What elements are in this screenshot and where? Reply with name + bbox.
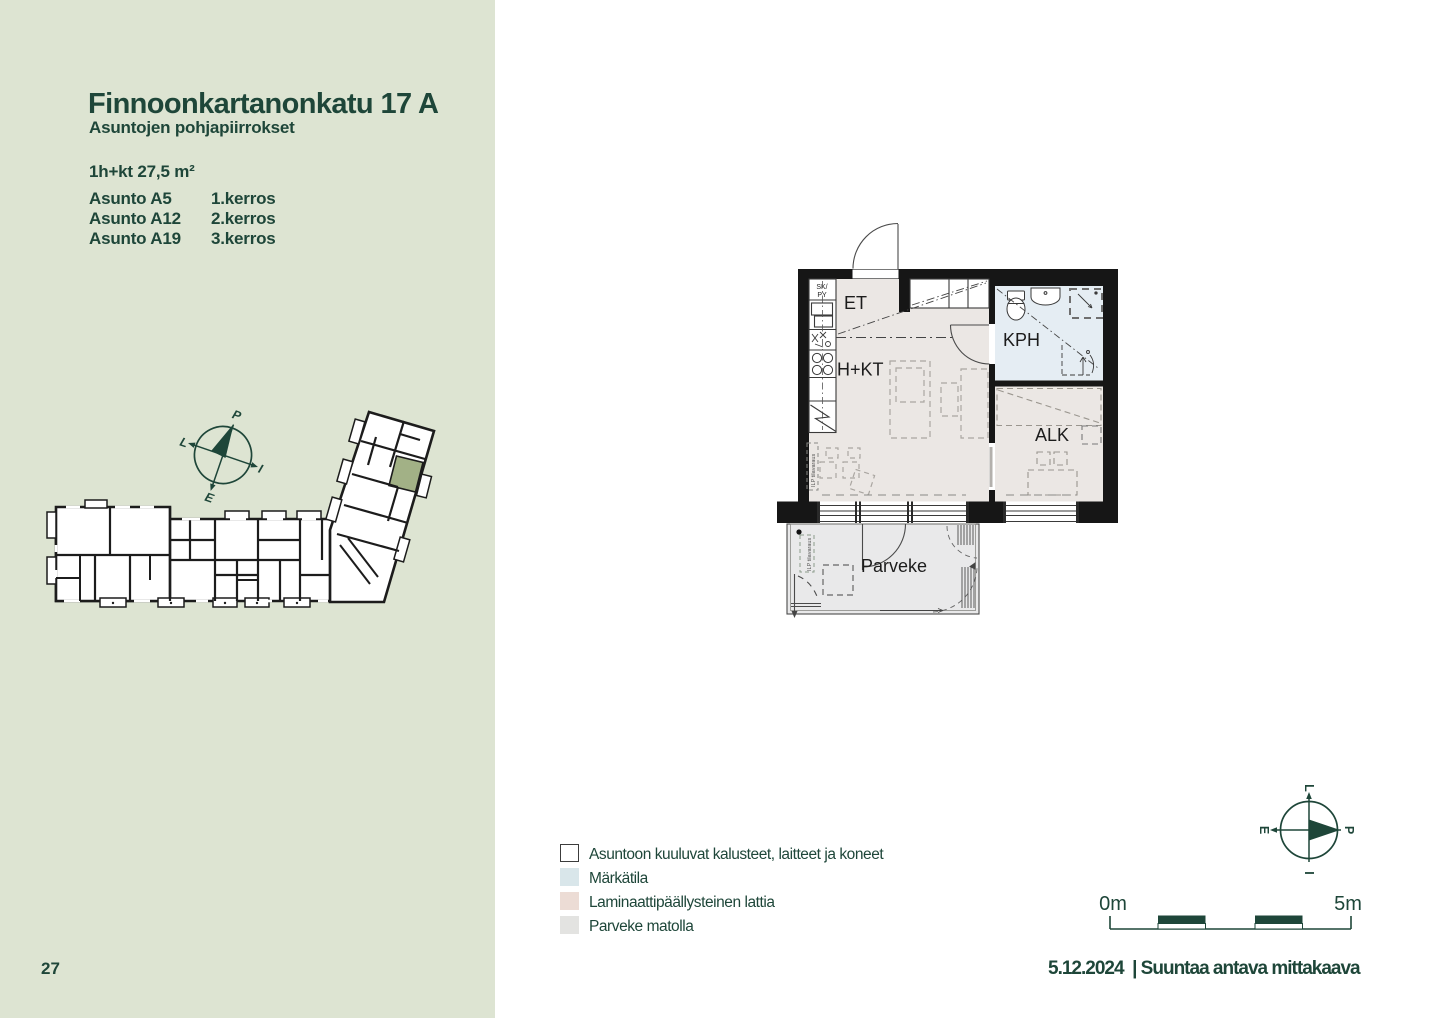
svg-text:ILP tilavaraus: ILP tilavaraus: [811, 454, 817, 487]
svg-text:KPH: KPH: [1003, 330, 1040, 350]
svg-text:ILP tilavaraus: ILP tilavaraus: [807, 538, 813, 571]
svg-text:SK/: SK/: [816, 284, 827, 291]
svg-text:H+KT: H+KT: [837, 360, 884, 380]
svg-text:ET: ET: [844, 293, 867, 313]
svg-text:P: P: [1342, 826, 1356, 834]
svg-text:0m: 0m: [1099, 893, 1127, 915]
svg-text:P: P: [230, 407, 243, 423]
svg-text:I: I: [257, 462, 265, 477]
svg-text:5m: 5m: [1334, 893, 1362, 915]
svg-text:L: L: [1302, 784, 1316, 792]
svg-text:Parveke: Parveke: [861, 556, 927, 576]
svg-text:ALK: ALK: [1035, 425, 1069, 445]
svg-text:E: E: [203, 490, 216, 506]
svg-text:L: L: [178, 435, 190, 451]
svg-text:E: E: [1257, 826, 1271, 834]
svg-text:I: I: [1302, 871, 1316, 874]
